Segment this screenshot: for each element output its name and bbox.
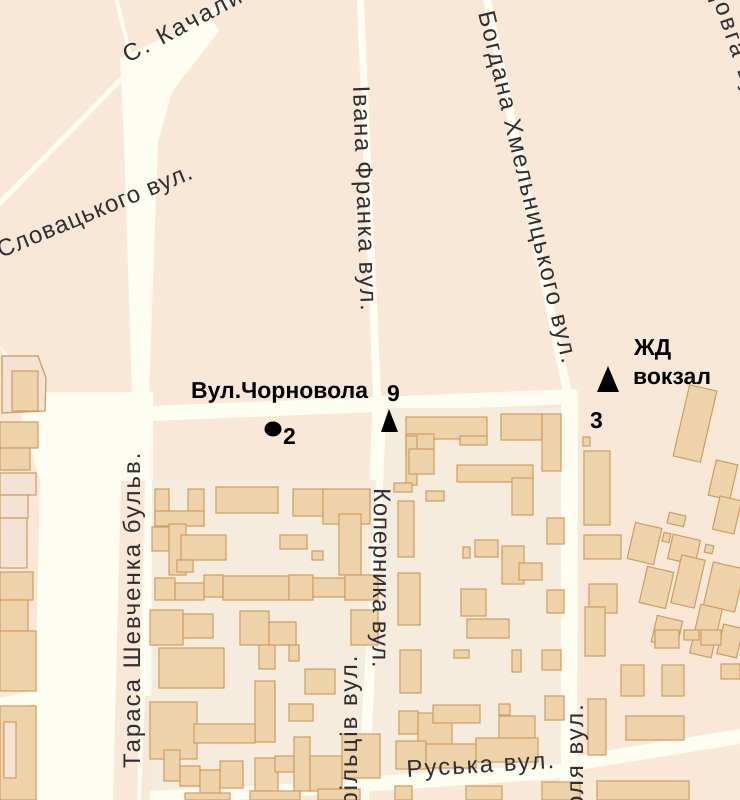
svg-text:вокзал: вокзал [633,363,711,389]
svg-text:Тараса Шевченка бульв.: Тараса Шевченка бульв. [119,451,146,768]
svg-text:Гоголя вул.: Гоголя вул. [562,702,589,800]
svg-text:2: 2 [283,423,296,449]
svg-text:Коперника вул.: Коперника вул. [366,488,395,669]
svg-text:Стрільців вул.: Стрільців вул. [336,654,363,800]
svg-text:9: 9 [387,380,400,406]
svg-text:Вул.Чорновола: Вул.Чорновола [191,377,368,403]
svg-text:ЖД: ЖД [633,334,671,360]
svg-text:3: 3 [590,407,603,433]
